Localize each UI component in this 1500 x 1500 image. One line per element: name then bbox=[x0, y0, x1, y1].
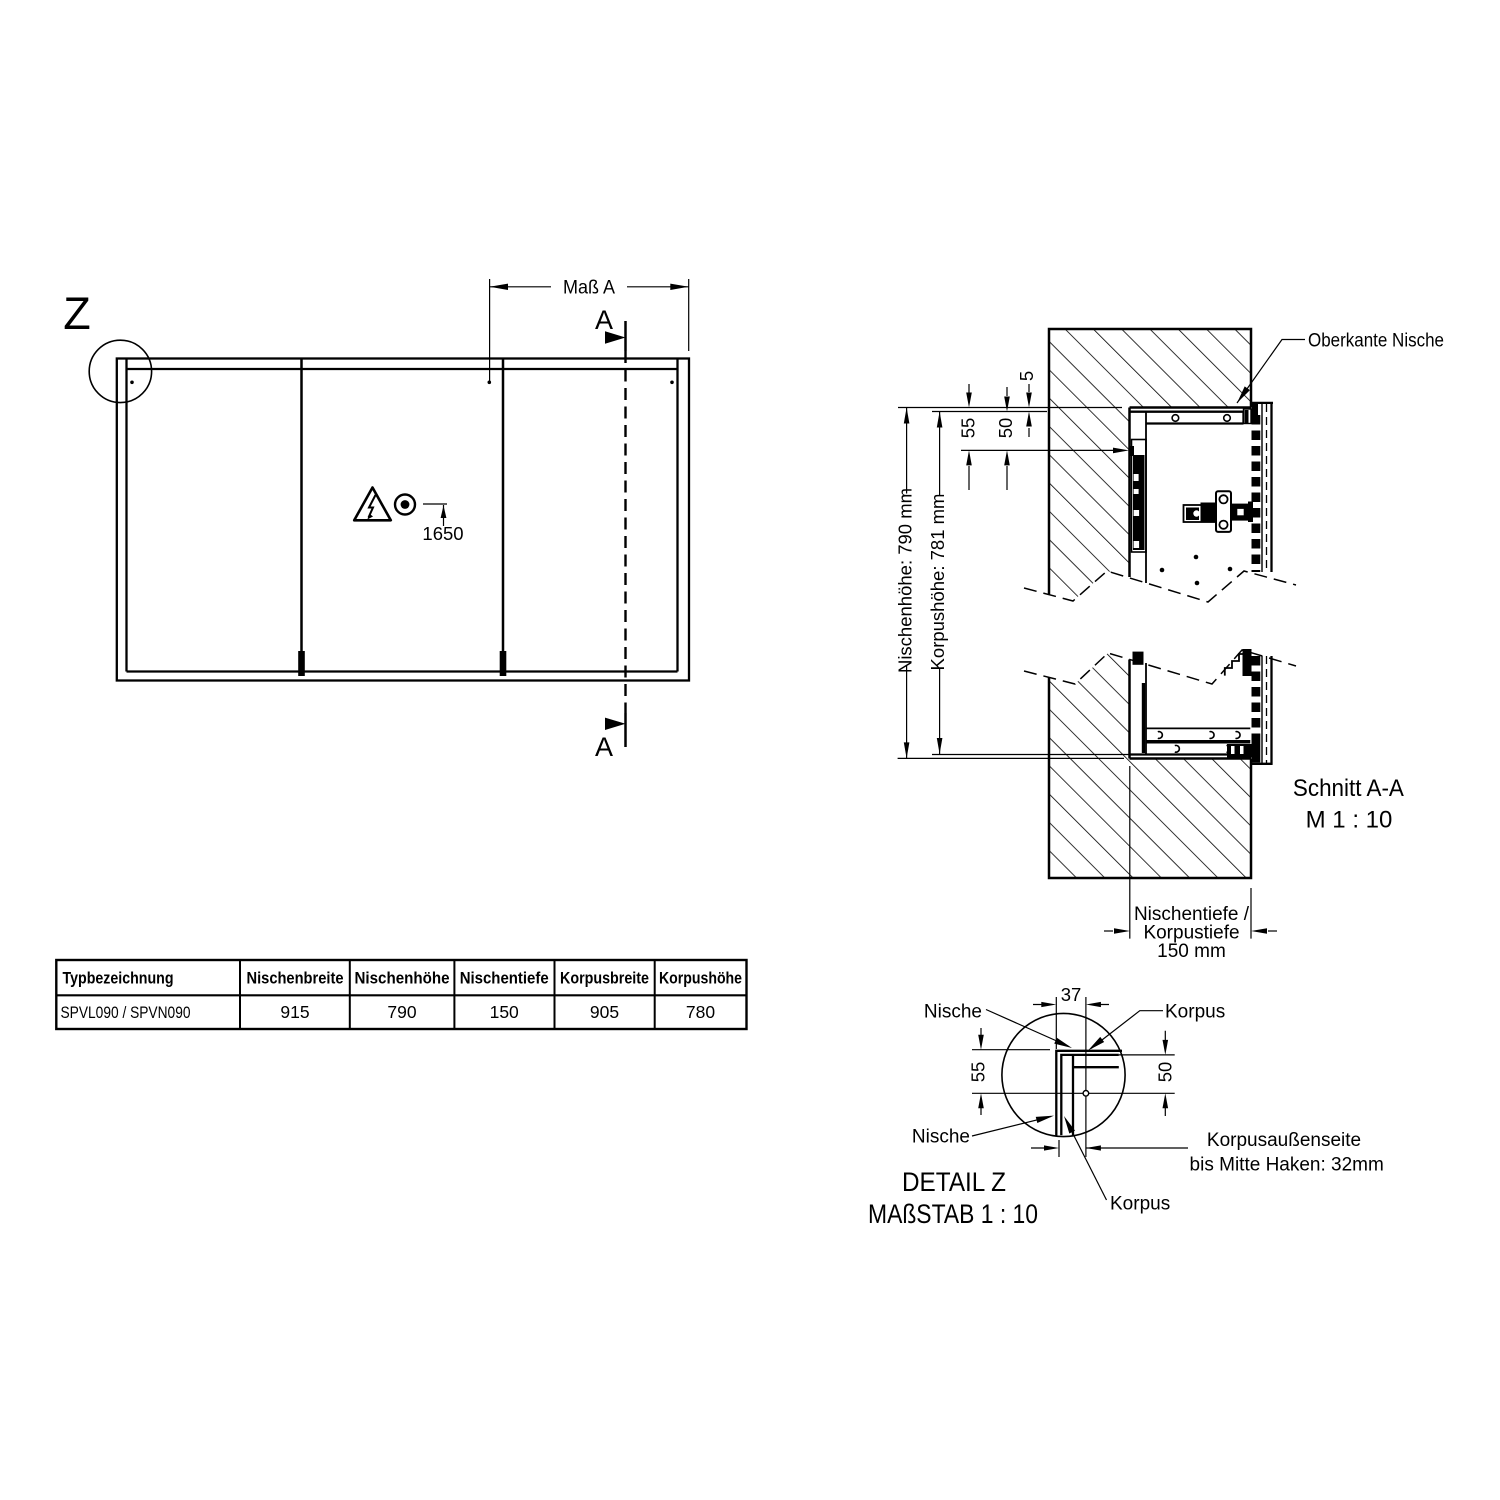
svg-text:Nischenbreite: Nischenbreite bbox=[247, 969, 344, 988]
svg-text:790: 790 bbox=[387, 1002, 416, 1022]
svg-text:1650: 1650 bbox=[422, 523, 463, 544]
svg-text:780: 780 bbox=[686, 1002, 715, 1022]
svg-text:Korpus: Korpus bbox=[1165, 1002, 1225, 1023]
svg-text:Nische: Nische bbox=[924, 1002, 982, 1023]
svg-text:Korpus: Korpus bbox=[1110, 1194, 1170, 1215]
svg-text:Typbezeichnung: Typbezeichnung bbox=[63, 969, 174, 988]
svg-text:Oberkante Nische: Oberkante Nische bbox=[1308, 331, 1444, 352]
svg-text:SPVL090 / SPVN090: SPVL090 / SPVN090 bbox=[61, 1003, 191, 1022]
svg-text:5: 5 bbox=[1016, 371, 1037, 381]
svg-text:A: A bbox=[595, 305, 613, 335]
svg-text:Maß A: Maß A bbox=[563, 278, 615, 299]
svg-text:A: A bbox=[595, 732, 613, 762]
svg-text:Nischenhöhe: 790 mm: Nischenhöhe: 790 mm bbox=[895, 488, 916, 673]
svg-text:50: 50 bbox=[1155, 1062, 1176, 1083]
svg-text:150 mm: 150 mm bbox=[1157, 941, 1226, 962]
svg-text:Korpusbreite: Korpusbreite bbox=[560, 969, 649, 988]
svg-text:Korpushöhe: Korpushöhe bbox=[659, 969, 742, 988]
svg-text:Nischentiefe: Nischentiefe bbox=[460, 969, 549, 988]
svg-text:55: 55 bbox=[958, 418, 979, 439]
svg-text:905: 905 bbox=[590, 1002, 619, 1022]
svg-text:37: 37 bbox=[1061, 984, 1082, 1005]
svg-text:DETAIL Z: DETAIL Z bbox=[902, 1167, 1006, 1197]
svg-text:Korpushöhe: 781 mm: Korpushöhe: 781 mm bbox=[927, 494, 948, 671]
svg-text:Nischenhöhe: Nischenhöhe bbox=[355, 969, 450, 988]
svg-text:150: 150 bbox=[490, 1002, 519, 1022]
svg-text:Nische: Nische bbox=[912, 1127, 970, 1148]
svg-text:MAßSTAB 1 : 10: MAßSTAB 1 : 10 bbox=[868, 1199, 1038, 1229]
svg-text:50: 50 bbox=[995, 418, 1016, 439]
svg-text:M 1 : 10: M 1 : 10 bbox=[1306, 807, 1393, 834]
svg-text:55: 55 bbox=[968, 1062, 989, 1083]
svg-text:Z: Z bbox=[63, 288, 91, 339]
svg-text:915: 915 bbox=[280, 1002, 309, 1022]
svg-text:Korpusaußenseite: Korpusaußenseite bbox=[1207, 1130, 1361, 1151]
svg-text:bis Mitte Haken: 32mm: bis Mitte Haken: 32mm bbox=[1190, 1155, 1384, 1176]
svg-text:Schnitt A-A: Schnitt A-A bbox=[1293, 775, 1404, 802]
